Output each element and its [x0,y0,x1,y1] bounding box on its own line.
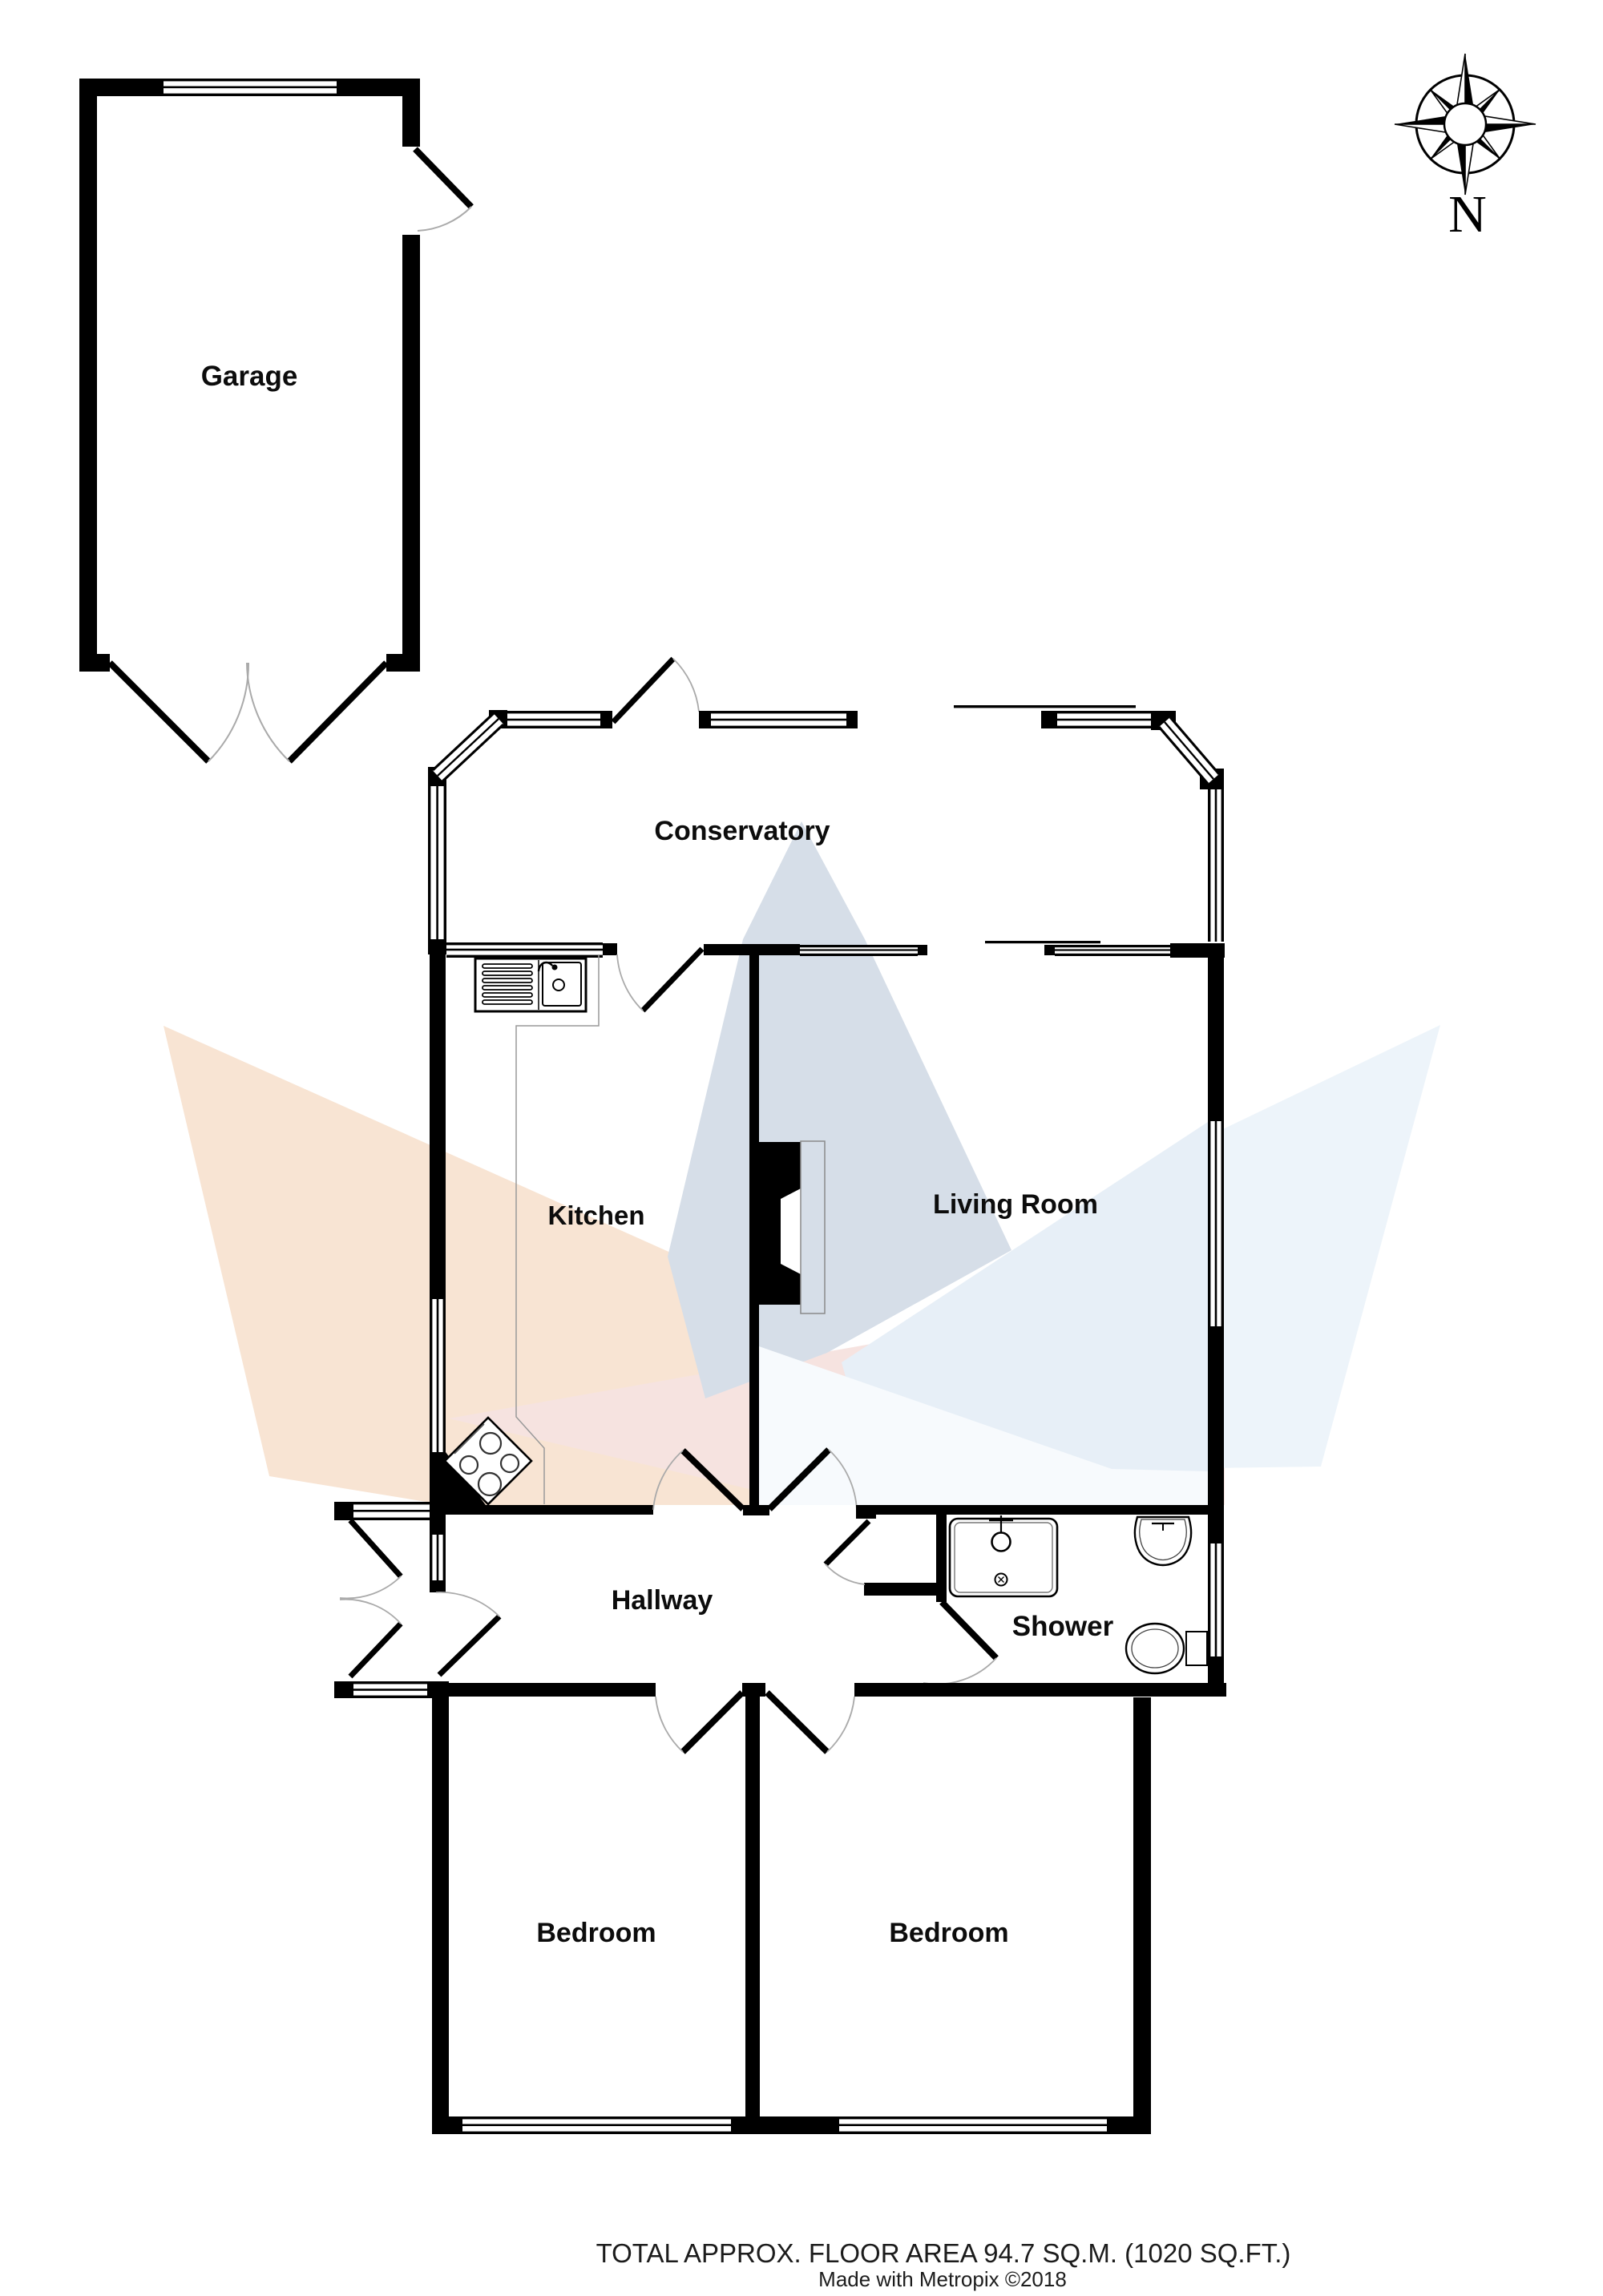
svg-text:Shower: Shower [1012,1611,1114,1642]
svg-text:Made with Metropix ©2018: Made with Metropix ©2018 [818,2267,1067,2291]
svg-text:Kitchen: Kitchen [547,1200,644,1230]
svg-text:Bedroom: Bedroom [536,1918,656,1948]
svg-text:Bedroom: Bedroom [889,1918,1008,1948]
svg-text:Conservatory: Conservatory [654,816,830,846]
svg-text:Garage: Garage [201,361,298,392]
svg-text:N: N [1448,185,1487,244]
svg-text:Living Room: Living Room [933,1189,1098,1220]
svg-text:Hallway: Hallway [612,1585,713,1616]
svg-text:TOTAL APPROX. FLOOR AREA 94.7: TOTAL APPROX. FLOOR AREA 94.7 SQ.M. (102… [596,2238,1291,2268]
